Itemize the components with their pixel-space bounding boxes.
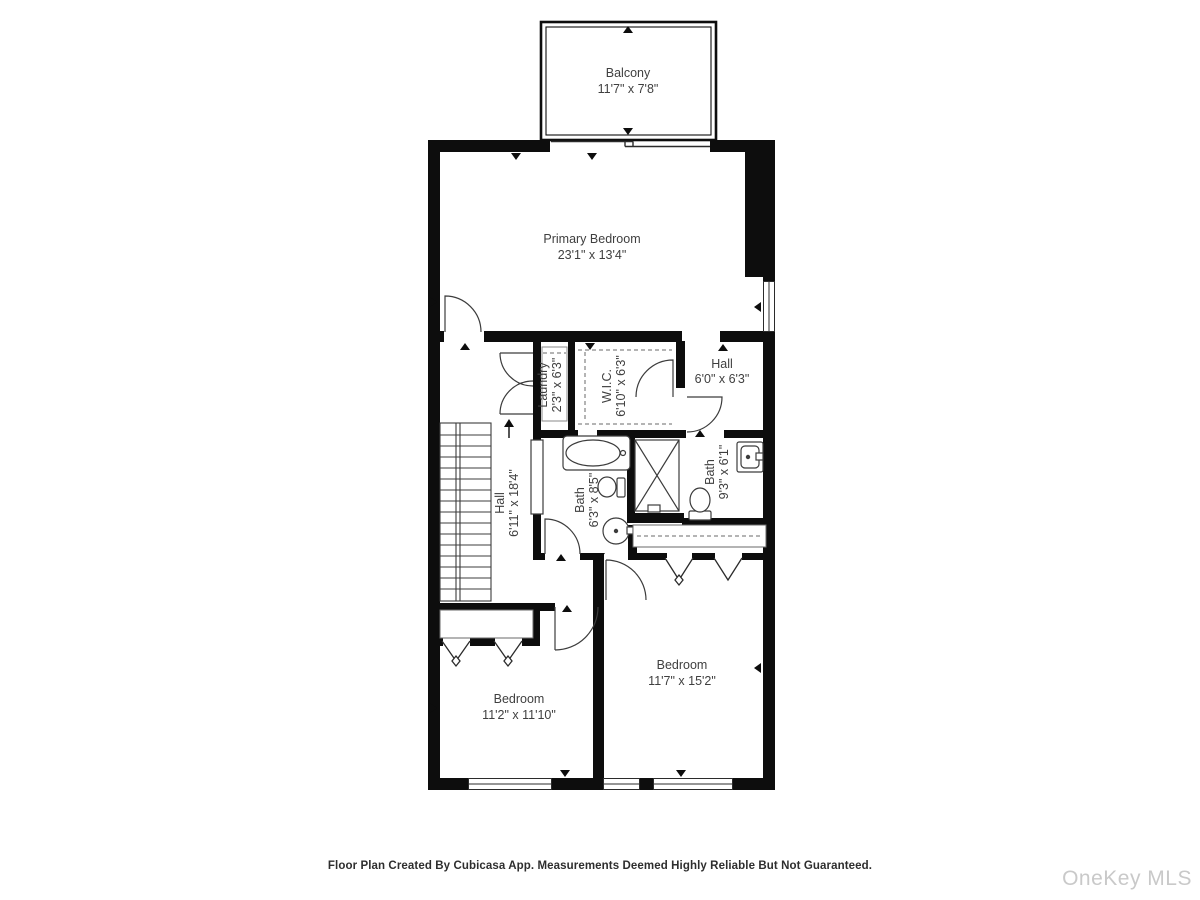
sink-right — [737, 442, 763, 472]
bathtub — [563, 436, 630, 470]
primary-bedroom-label: Primary Bedroom — [543, 232, 640, 246]
toilet-right — [689, 488, 711, 520]
hall-main-label: Hall — [493, 492, 507, 514]
stairs — [440, 423, 491, 601]
shower — [635, 440, 679, 512]
stairs-direction-arrow — [504, 419, 514, 438]
door-primary-bedroom — [445, 296, 481, 332]
balcony-label: Balcony — [606, 66, 651, 80]
bedroom-right-dims: 11'7" x 15'2" — [648, 674, 716, 688]
wic-label: W.I.C. — [600, 369, 614, 403]
watermark-text: OneKey MLS — [1062, 867, 1192, 891]
laundry-label: Laundry — [536, 362, 550, 408]
hall-upper-label: Hall — [711, 357, 733, 371]
closet-chevrons-right — [665, 558, 742, 585]
closet-strip-left — [440, 610, 533, 638]
floor-plan-page: Balcony 11'7" x 7'8" Primary Bedroom 23'… — [0, 0, 1200, 900]
bath-right-dims: 9'3" x 6'1" — [717, 445, 731, 500]
toilet-left — [598, 477, 625, 497]
door-laundry-bifold — [500, 353, 533, 414]
hall-main-dims: 6'11" x 18'4" — [507, 469, 521, 537]
window-bedroom-right-a — [603, 778, 640, 790]
disclaimer-text: Floor Plan Created By Cubicasa App. Meas… — [0, 860, 1200, 872]
bedroom-right-label: Bedroom — [657, 658, 708, 672]
bedroom-left-dims: 11'2" x 11'10" — [482, 708, 556, 722]
window-bedroom-right-b — [653, 778, 733, 790]
laundry-dims: 2'3" x 6'3" — [550, 358, 564, 413]
door-bedroom-left — [555, 607, 598, 650]
hall-upper-dims: 6'0" x 6'3" — [695, 372, 750, 386]
window-bedroom-left — [468, 778, 552, 790]
floor-plan-svg: Balcony 11'7" x 7'8" Primary Bedroom 23'… — [0, 0, 1200, 900]
door-bedroom-right — [606, 560, 646, 600]
bath-right-label: Bath — [703, 459, 717, 485]
balcony-outline — [541, 22, 716, 140]
door-upper-hall — [687, 397, 722, 432]
balcony-dims: 11'7" x 7'8" — [598, 82, 659, 96]
bath-left-dims: 6'3" x 8'5" — [587, 473, 601, 528]
door-bath-left — [545, 519, 580, 554]
balcony-sliding-door — [551, 142, 710, 147]
primary-bedroom-dims: 23'1" x 13'4" — [558, 248, 627, 262]
door-wic — [636, 360, 673, 397]
bedroom-left-label: Bedroom — [494, 692, 545, 706]
wic-dims: 6'10" x 6'3" — [614, 355, 628, 417]
window-primary-right — [763, 281, 775, 332]
bath-left-label: Bath — [573, 487, 587, 513]
linen-shelf — [531, 440, 543, 514]
